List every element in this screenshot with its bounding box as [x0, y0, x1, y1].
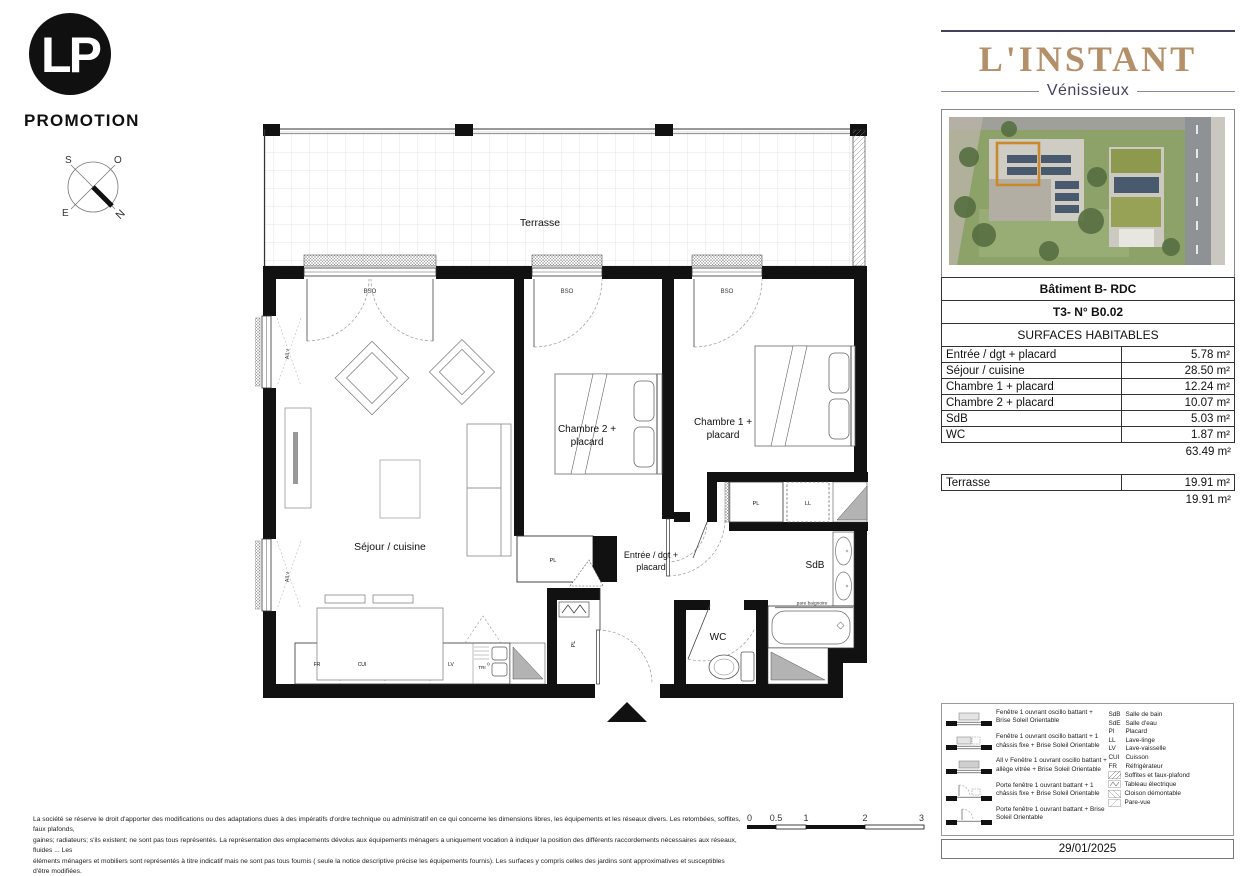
- compass-o: O: [114, 155, 122, 166]
- surface-value: 12.24 m²: [1122, 379, 1234, 394]
- hatch-label: Soffites et faux-plafond: [1124, 772, 1189, 779]
- bso-label: BSO: [721, 289, 734, 295]
- hood-symbol: [465, 616, 501, 643]
- terrace-table: Terrasse 19.91 m²: [941, 474, 1235, 491]
- bso-label: BSO: [561, 289, 574, 295]
- abbr-row: SdESalle d'eau: [1108, 720, 1231, 727]
- unit-label: T3- N° B0.02: [941, 300, 1235, 324]
- abbr-row: PlPlacard: [1108, 728, 1231, 735]
- bso-label: BSO: [364, 289, 377, 295]
- legend-box: Fenêtre 1 ouvrant oscillo battant + Bris…: [941, 703, 1234, 836]
- electrical-swatch-icon: [1108, 780, 1121, 788]
- hatch-label: Pare-vue: [1124, 799, 1150, 806]
- dining-table: [317, 595, 443, 680]
- armchair: [335, 341, 409, 415]
- divider: [941, 30, 1235, 32]
- ll-label: LL: [805, 501, 811, 507]
- hatch-row: Pare-vue: [1108, 799, 1231, 807]
- bed-chambre1: [755, 346, 855, 446]
- table-row: SdB 5.03 m²: [942, 411, 1234, 427]
- legend-window-types: Fenêtre 1 ouvrant oscillo battant + Bris…: [946, 709, 1108, 833]
- tri-label: TRI: [478, 665, 485, 670]
- abbr-row: SdBSalle de bain: [1108, 711, 1231, 718]
- pl-label: PL: [571, 641, 577, 648]
- hatch-swatch-icon: [1108, 799, 1121, 807]
- abbr-row: FRRéfrigérateur: [1108, 763, 1231, 770]
- window-symbol-icon: [946, 758, 992, 778]
- hatch-label: Cloison démontable: [1124, 790, 1181, 797]
- terrace-area: [263, 124, 867, 266]
- abbr-row: CUICuisson: [1108, 754, 1231, 761]
- coffee-table: [380, 460, 420, 518]
- legend-label: Fenêtre 1 ouvrant oscillo battant + 1 ch…: [996, 733, 1108, 750]
- table-row: WC 1.87 m²: [942, 427, 1234, 442]
- abbr: CUI: [1108, 754, 1125, 761]
- disclaimer-line: éléments ménagers et mobiliers sont repr…: [33, 857, 741, 876]
- surface-label: Chambre 1 + placard: [942, 379, 1122, 394]
- room-label-chambre2-line2: placard: [571, 437, 604, 448]
- sofa: [467, 424, 511, 556]
- abbr: SdB: [1108, 711, 1125, 718]
- room-label-chambre1-line2: placard: [707, 430, 740, 441]
- room-label-sejour: Séjour / cuisine: [354, 541, 426, 553]
- legend-item: All vFenêtre 1 ouvrant oscillo battant +…: [946, 757, 1108, 778]
- terrace-total: 19.91 m²: [941, 491, 1235, 506]
- hatch-row: Tableau électrique: [1108, 780, 1231, 788]
- legend-label: Fenêtre 1 ouvrant oscillo battant + Bris…: [996, 709, 1108, 726]
- allv-label: All v: [285, 572, 291, 583]
- allv-prefix: All v: [996, 757, 1008, 764]
- tv-console: [285, 408, 311, 508]
- window-symbol-icon: [946, 734, 992, 754]
- pl-label: PL: [550, 558, 557, 564]
- table-row: Terrasse 19.91 m²: [942, 475, 1234, 490]
- surface-label: Chambre 2 + placard: [942, 395, 1122, 410]
- abbr-row: LVLave-vaisselle: [1108, 745, 1231, 752]
- abbr: LL: [1108, 737, 1125, 744]
- surface-value: 10.07 m²: [1122, 395, 1234, 410]
- disclaimer-line: gaines; radiateurs; s'ils existent; ne s…: [33, 836, 741, 857]
- bathtub: [768, 606, 854, 648]
- pare-baignoire-label: pare baignoire: [797, 601, 828, 607]
- table-row: Entrée / dgt + placard 5.78 m²: [942, 347, 1234, 363]
- pl-label: PL: [753, 501, 760, 507]
- abbr-label: Salle de bain: [1125, 711, 1162, 718]
- project-city-row: Vénissieux: [941, 82, 1235, 100]
- floor-plan: Terrasse BSO BSO BSO All v All v Séjour …: [255, 116, 875, 733]
- site-aerial-photo: [941, 109, 1235, 278]
- lp-promotion-wordmark: PROMOTION: [24, 111, 140, 131]
- surface-label: Entrée / dgt + placard: [942, 347, 1122, 362]
- compass-s: S: [65, 155, 72, 166]
- project-name: L'INSTANT: [941, 38, 1235, 80]
- compass-rose-icon: S O E N: [50, 144, 136, 235]
- surfaces-total: 63.49 m²: [941, 443, 1235, 458]
- hatch-label: Tableau électrique: [1124, 781, 1176, 788]
- date-label: 29/01/2025: [941, 839, 1234, 859]
- abbr-label: Salle d'eau: [1125, 720, 1156, 727]
- hatch-swatch-icon: [1108, 790, 1121, 798]
- legend-label: Porte fenêtre 1 ouvrant battant + Brise …: [996, 806, 1108, 823]
- legal-disclaimer: La société se réserve le droit d'apporte…: [33, 815, 741, 876]
- surface-label: Séjour / cuisine: [942, 363, 1122, 378]
- closet-pl-ll: [725, 482, 867, 522]
- scale-bar: 0 0.5 1 2 3: [746, 812, 928, 843]
- closet-chambre2: [517, 536, 617, 582]
- table-row: Séjour / cuisine 28.50 m²: [942, 363, 1234, 379]
- abbr-label: Lave-vaisselle: [1125, 745, 1166, 752]
- armchair: [429, 339, 494, 404]
- abbr: FR: [1108, 763, 1125, 770]
- surfaces-table: Entrée / dgt + placard 5.78 m² Séjour / …: [941, 346, 1235, 443]
- disclaimer-line: La société se réserve le droit d'apporte…: [33, 815, 741, 836]
- scale-tick: 0.5: [770, 813, 783, 823]
- lv-label: LV: [448, 662, 454, 668]
- abbr-label: Placard: [1125, 728, 1147, 735]
- window-symbol-icon: [946, 710, 992, 730]
- cui-label: CUI: [358, 662, 367, 668]
- hatch-row: Cloison démontable: [1108, 790, 1231, 798]
- hatch-swatch-icon: [1108, 771, 1121, 779]
- abbr-label: Lave-linge: [1125, 737, 1155, 744]
- lp-monogram-icon: LP: [28, 12, 112, 96]
- abbr: LV: [1108, 745, 1125, 752]
- floorplan-sheet: LP PROMOTION S O E N: [0, 0, 1240, 876]
- scale-tick: 1: [803, 813, 808, 823]
- scale-tick: 2: [862, 813, 867, 823]
- surface-label: Terrasse: [942, 475, 1122, 490]
- surface-value: 5.78 m²: [1122, 347, 1234, 362]
- fr-label: FR: [314, 662, 321, 668]
- living-furniture: [285, 339, 511, 680]
- room-label-chambre1: Chambre 1 +: [694, 417, 752, 428]
- abbr: SdE: [1108, 720, 1125, 727]
- abbr-row: LLLave-linge: [1108, 737, 1231, 744]
- room-label-wc: WC: [710, 632, 727, 643]
- abbr: Pl: [1108, 728, 1125, 735]
- door-window-symbol-icon: [946, 807, 992, 827]
- legend-item: Porte fenêtre 1 ouvrant battant + Brise …: [946, 806, 1108, 827]
- legend-label: All vFenêtre 1 ouvrant oscillo battant +…: [996, 757, 1108, 774]
- room-label-terrasse: Terrasse: [520, 217, 560, 229]
- divider: [1137, 91, 1235, 92]
- pare-vue-screen: [853, 130, 865, 266]
- door-window-symbol-icon: [946, 783, 992, 803]
- room-label-sdb: SdB: [806, 560, 825, 571]
- table-row: Chambre 1 + placard 12.24 m²: [942, 379, 1234, 395]
- divider: [941, 91, 1039, 92]
- building-label: Bâtiment B- RDC: [941, 277, 1235, 301]
- room-label-chambre2: Chambre 2 +: [558, 424, 616, 435]
- surface-value: 1.87 m²: [1122, 427, 1234, 442]
- surface-value: 5.03 m²: [1122, 411, 1234, 426]
- compass-e: E: [62, 208, 69, 219]
- legend-item: Fenêtre 1 ouvrant oscillo battant + 1 ch…: [946, 733, 1108, 754]
- scale-tick: 0: [747, 813, 752, 823]
- toilet: [709, 655, 739, 679]
- lp-promotion-logo: LP: [28, 12, 158, 101]
- table-row: Chambre 2 + placard 10.07 m²: [942, 395, 1234, 411]
- legend-label-text: Fenêtre 1 ouvrant oscillo battant + allè…: [996, 757, 1107, 772]
- hatch-row: Soffites et faux-plafond: [1108, 771, 1231, 779]
- surface-label: WC: [942, 427, 1122, 442]
- surface-value: 19.91 m²: [1122, 475, 1234, 490]
- info-panel: L'INSTANT Vénissieux: [941, 18, 1235, 506]
- legend-item: Fenêtre 1 ouvrant oscillo battant + Bris…: [946, 709, 1108, 730]
- abbr-label: Réfrigérateur: [1125, 763, 1162, 770]
- room-label-entree-line2: placard: [636, 562, 666, 572]
- legend-label: Porte fenêtre 1 ouvrant battant + 1 châs…: [996, 782, 1108, 799]
- legend-item: Porte fenêtre 1 ouvrant battant + 1 châs…: [946, 782, 1108, 803]
- lp-monogram-text: LP: [41, 27, 101, 83]
- surface-value: 28.50 m²: [1122, 363, 1234, 378]
- allv-label: All v: [285, 349, 291, 360]
- scale-tick: 3: [919, 813, 924, 823]
- room-label-entree: Entrée / dgt +: [624, 550, 678, 560]
- legend-abbreviations: SdBSalle de bain SdESalle d'eau PlPlacar…: [1108, 709, 1231, 833]
- entrance-arrow-icon: [607, 702, 647, 722]
- project-city: Vénissieux: [1047, 82, 1129, 100]
- surface-label: SdB: [942, 411, 1122, 426]
- surfaces-title: SURFACES HABITABLES: [941, 323, 1235, 347]
- terrace-windows: [304, 255, 762, 280]
- abbr-label: Cuisson: [1125, 754, 1148, 761]
- wc-fixtures: [709, 652, 754, 681]
- compass-n: N: [114, 208, 128, 222]
